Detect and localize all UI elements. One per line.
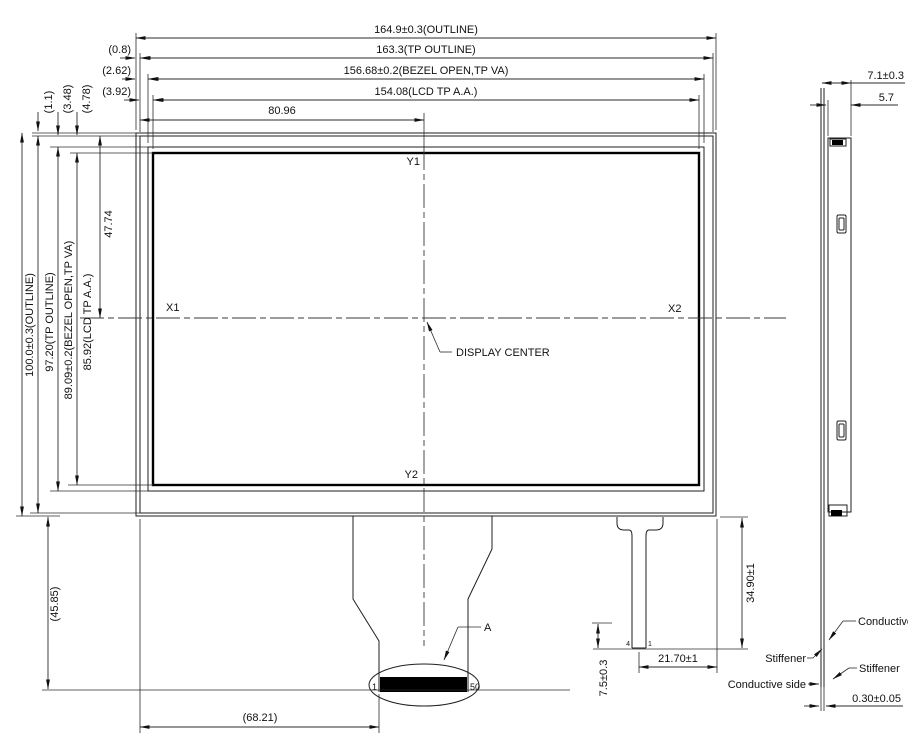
pin-1-label: 1 <box>372 682 377 692</box>
dim-outline-height: 100.0±0.3(OUTLINE) <box>24 273 36 377</box>
axis-label-y1: Y1 <box>407 156 420 168</box>
dim-tail2-tip: 7.5±0.3 <box>598 660 610 697</box>
dim-center-offset-y: 47.74 <box>103 210 115 238</box>
ref-tail-offset: (68.21) <box>243 712 278 724</box>
dim-tail2-width: 21.70±1 <box>658 653 698 665</box>
dim-fpc-thickness: 0.30±0.05 <box>852 693 901 705</box>
ref-gap-2-62: (2.62) <box>102 65 131 77</box>
label-conductive: Conductive <box>858 616 908 628</box>
label-stiffener-left: Stiffener <box>765 653 806 665</box>
ref-tail-height: (45.85) <box>49 587 61 622</box>
dim-tp-outline-height: 97.20(TP OUTLINE) <box>44 272 56 371</box>
dim-tail2-length: 34.90±1 <box>745 563 757 603</box>
axis-label-x2: X2 <box>668 303 681 315</box>
drawing-page: 164.9±0.3(OUTLINE) 163.3(TP OUTLINE) 156… <box>0 0 908 738</box>
tail2-pin-1-label: 1 <box>648 641 652 648</box>
dim-thickness-body: 5.7 <box>879 92 894 104</box>
pin-50-label: 50 <box>470 682 480 692</box>
drawing-canvas: 164.9±0.3(OUTLINE) 163.3(TP OUTLINE) 156… <box>0 0 908 738</box>
ref-gap-0-8: (0.8) <box>108 44 131 56</box>
label-conductive-side: Conductive side <box>728 679 806 691</box>
ref-gap-4-78: (4.78) <box>81 85 93 114</box>
axis-label-y2: Y2 <box>405 469 418 481</box>
dim-center-offset-x: 80.96 <box>268 105 296 117</box>
display-center-label: DISPLAY CENTER <box>456 347 550 359</box>
dim-aa-width: 154.08(LCD TP A.A.) <box>375 86 478 98</box>
tail2-pin-4-label: 4 <box>626 641 630 648</box>
axis-label-x1: X1 <box>166 302 179 314</box>
ref-gap-1-1: (1.1) <box>43 91 55 114</box>
detail-a-label: A <box>484 622 492 634</box>
dim-bezel-width: 156.68±0.2(BEZEL OPEN,TP VA) <box>344 65 509 77</box>
dim-aa-height: 85.92(LCD TP A.A.) <box>82 274 94 371</box>
dim-tp-outline-width: 163.3(TP OUTLINE) <box>376 44 475 56</box>
dim-thickness-total: 7.1±0.3 <box>867 70 904 82</box>
dim-outline-width: 164.9±0.3(OUTLINE) <box>374 24 478 36</box>
ref-gap-3-92: (3.92) <box>102 86 131 98</box>
ref-gap-3-48: (3.48) <box>62 85 74 114</box>
label-stiffener-right: Stiffener <box>859 663 900 675</box>
dim-bezel-height: 89.09±0.2(BEZEL OPEN,TP VA) <box>63 241 75 400</box>
